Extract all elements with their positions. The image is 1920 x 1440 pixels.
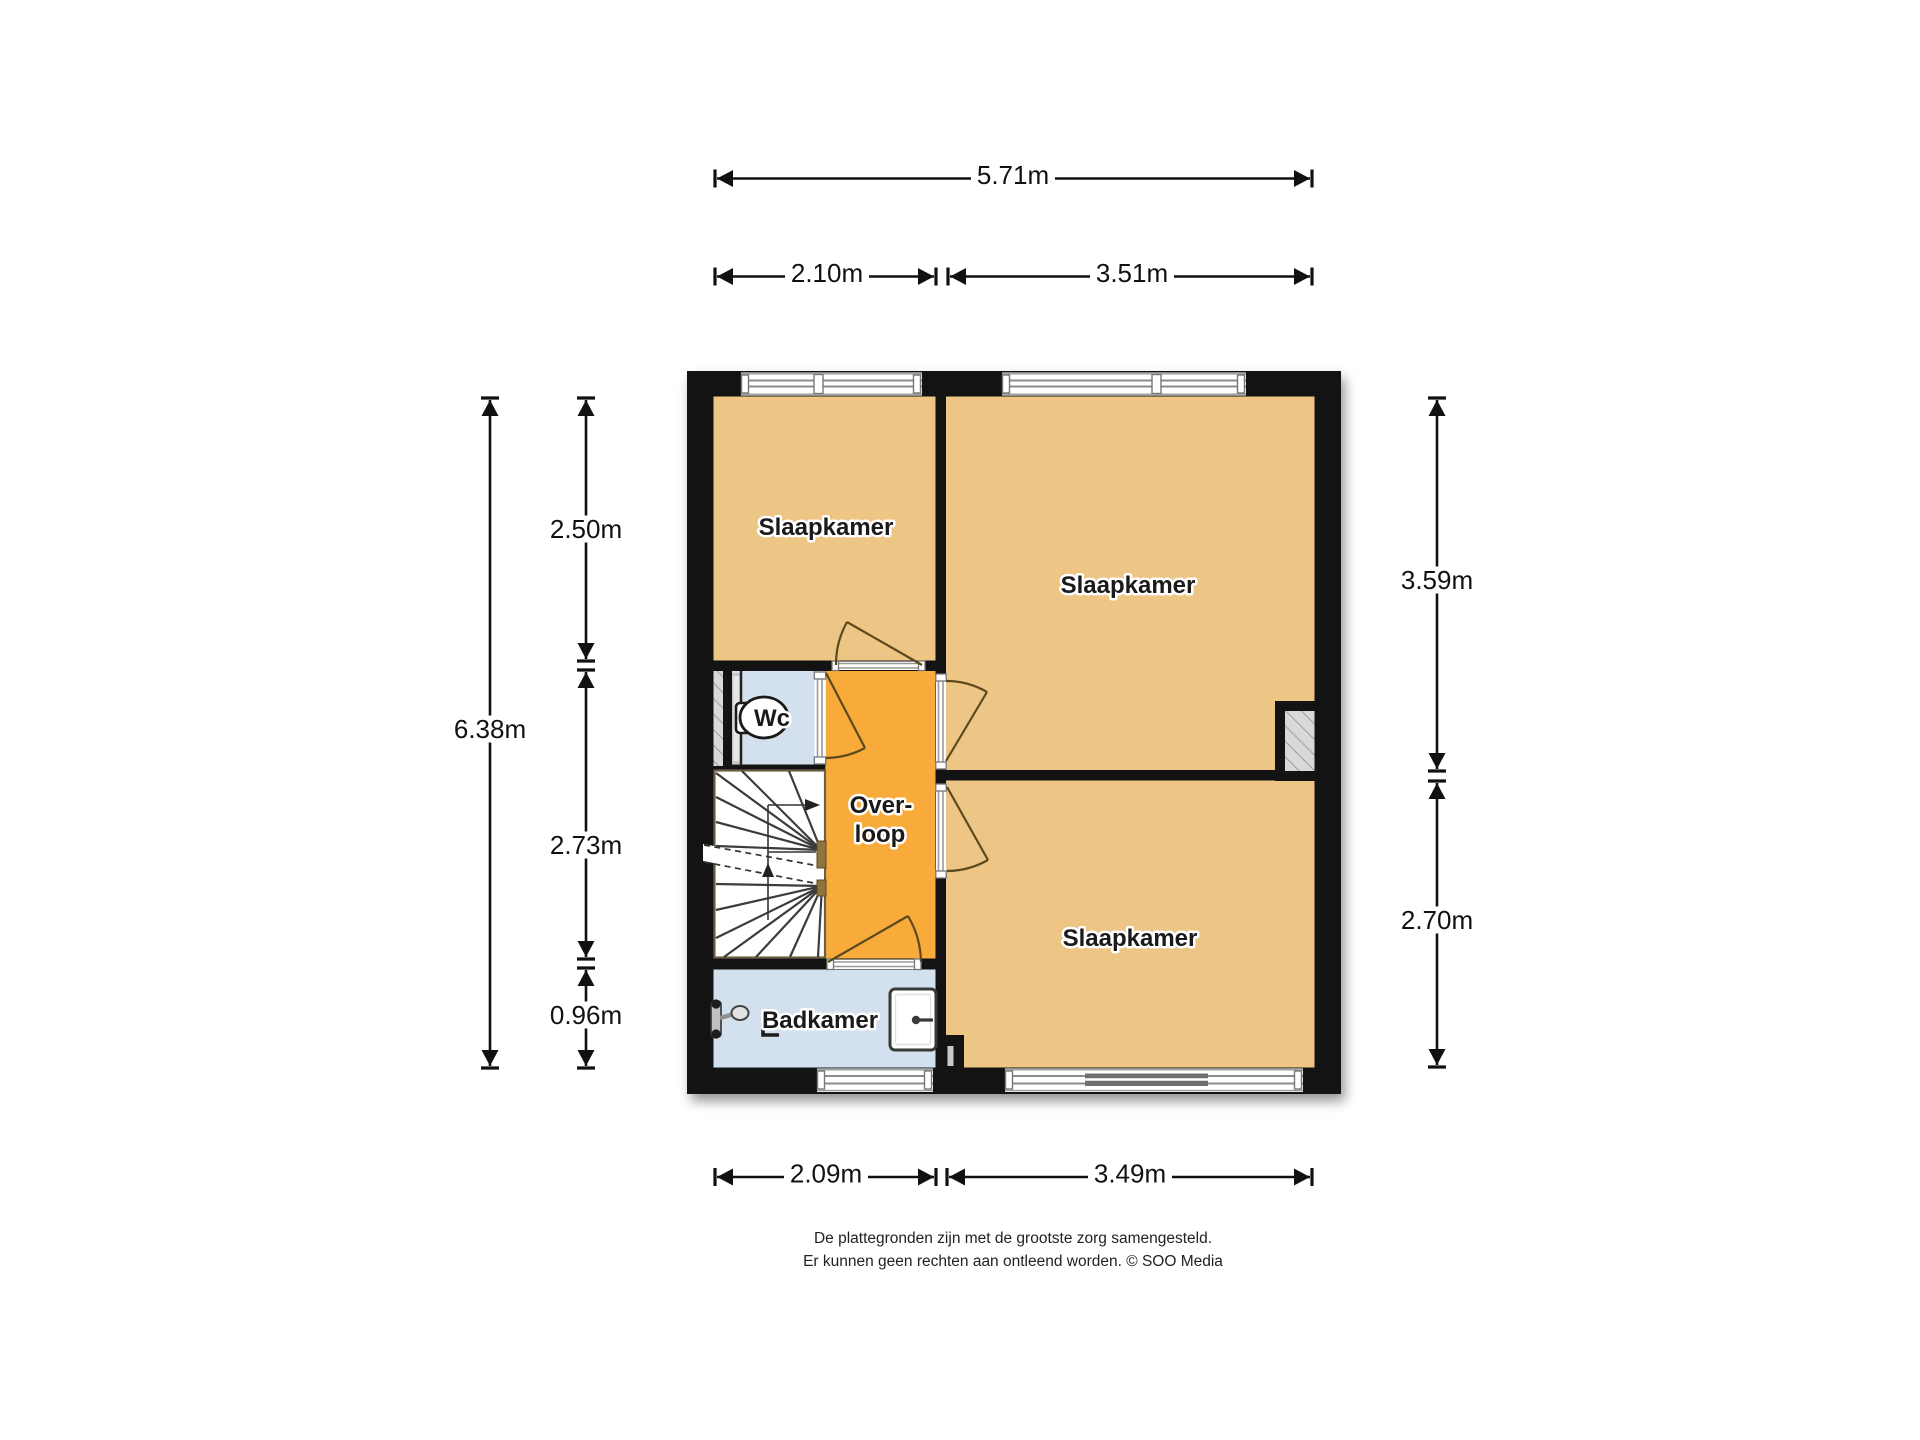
svg-text:6.38m: 6.38m — [454, 714, 526, 744]
svg-text:2.73m: 2.73m — [550, 830, 622, 860]
svg-text:2.10m: 2.10m — [791, 258, 863, 288]
svg-text:Slaapkamer: Slaapkamer — [1063, 925, 1198, 952]
svg-text:3.49m: 3.49m — [1094, 1159, 1166, 1189]
svg-text:Slaapkamer: Slaapkamer — [1061, 572, 1196, 599]
svg-text:2.09m: 2.09m — [790, 1159, 862, 1189]
svg-text:Over-: Over- — [850, 792, 913, 819]
svg-text:2.70m: 2.70m — [1401, 905, 1473, 935]
svg-text:Wc: Wc — [754, 705, 790, 732]
svg-text:Slaapkamer: Slaapkamer — [759, 514, 894, 541]
svg-text:De plattegronden zijn met de g: De plattegronden zijn met de grootste zo… — [814, 1230, 1212, 1247]
svg-text:Er kunnen geen rechten aan ont: Er kunnen geen rechten aan ontleend word… — [803, 1253, 1223, 1270]
svg-text:2.50m: 2.50m — [550, 514, 622, 544]
svg-text:3.59m: 3.59m — [1401, 565, 1473, 595]
svg-text:Badkamer: Badkamer — [762, 1007, 878, 1034]
svg-text:loop: loop — [855, 821, 906, 848]
svg-text:3.51m: 3.51m — [1096, 258, 1168, 288]
svg-text:0.96m: 0.96m — [550, 1000, 622, 1030]
svg-text:5.71m: 5.71m — [977, 160, 1049, 190]
